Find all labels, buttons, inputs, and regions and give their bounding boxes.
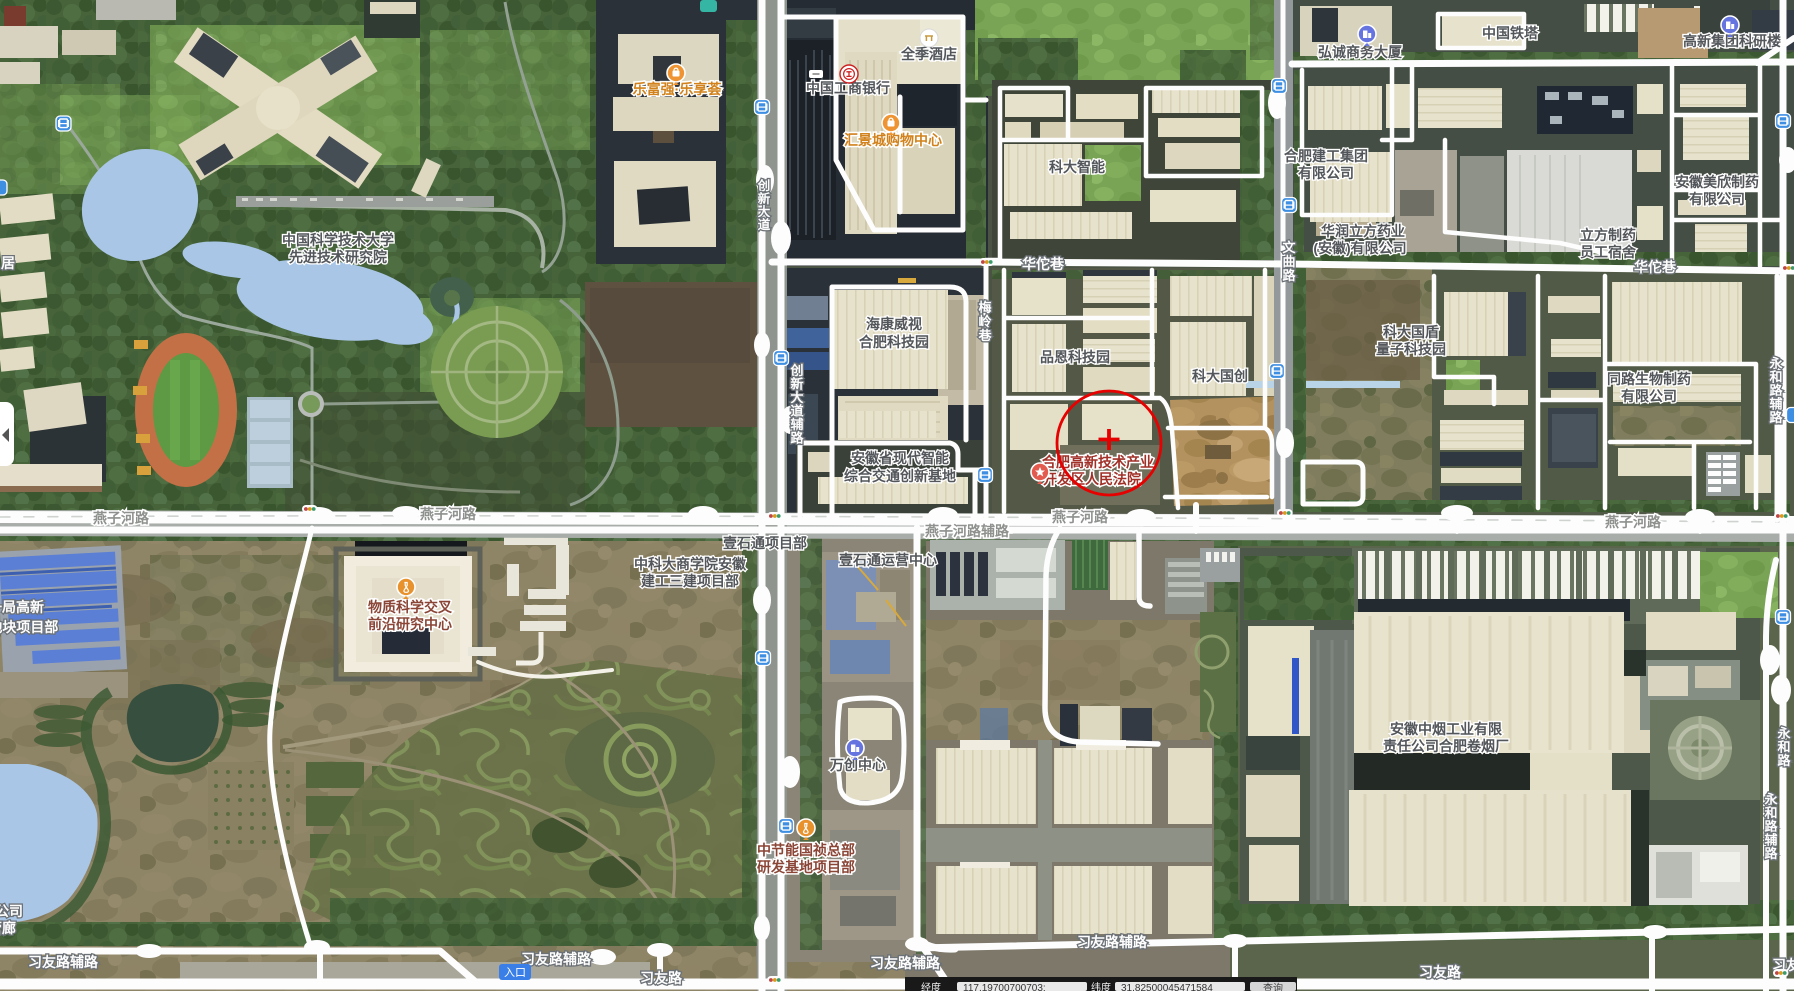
svg-text:高新集团科研楼: 高新集团科研楼 [1683,33,1781,49]
svg-text:全季酒店: 全季酒店 [900,46,957,62]
svg-text:创新大道辅路: 创新大道辅路 [789,363,804,446]
svg-text:202106地块项目部: 202106地块项目部 [0,619,58,635]
svg-text:安徽省现代智能: 安徽省现代智能 [851,450,949,466]
svg-text:安徽中烟工业有限: 安徽中烟工业有限 [1390,721,1502,737]
svg-text:综合交通创新基地: 综合交通创新基地 [844,468,956,484]
svg-text:燕子河路辅路: 燕子河路辅路 [925,523,1010,539]
svg-text:华佗巷: 华佗巷 [1634,259,1677,275]
svg-text:先进技术研究院: 先进技术研究院 [289,249,387,265]
svg-text:合肥科技园: 合肥科技园 [859,334,929,350]
svg-text:中国科学技术大学: 中国科学技术大学 [282,232,394,248]
svg-text:有限公司: 有限公司 [1621,388,1677,404]
svg-text:文曲路: 文曲路 [1282,240,1296,283]
svg-text:燕子河路: 燕子河路 [93,510,150,526]
svg-text:中科大商学院安徽: 中科大商学院安徽 [634,556,747,572]
svg-text:创新大道: 创新大道 [757,178,771,232]
svg-text:同路生物制药: 同路生物制药 [1607,371,1691,387]
svg-text:员工宿舍: 员工宿舍 [1580,244,1637,260]
svg-text:海康威视: 海康威视 [866,316,922,332]
svg-text:习友路辅路: 习友路辅路 [1077,934,1148,950]
svg-text:中国铁塔: 中国铁塔 [1482,25,1539,41]
svg-text:有限公司: 有限公司 [1298,165,1354,181]
svg-text:科大国创: 科大国创 [1192,368,1248,384]
svg-text:量子科技园: 量子科技园 [1376,341,1446,357]
svg-text:万创中心: 万创中心 [829,757,886,773]
svg-text:弘诚商务大厦: 弘诚商务大厦 [1318,44,1403,60]
svg-text:合肥建工集团: 合肥建工集团 [1284,148,1368,164]
svg-text:立方制药: 立方制药 [1580,227,1636,243]
svg-text:习友路辅路: 习友路辅路 [28,954,99,970]
svg-text:乐富强·乐享荟: 乐富强·乐享荟 [633,81,723,97]
svg-text:习友路: 习友路 [640,970,683,986]
svg-text:燕子河路: 燕子河路 [1052,509,1109,525]
svg-text:建工三建项目部: 建工三建项目部 [641,573,739,589]
svg-text:梅岭巷: 梅岭巷 [977,300,992,343]
svg-text:燕子河路: 燕子河路 [420,506,477,522]
svg-text:物质科学交叉: 物质科学交叉 [368,599,453,615]
svg-text:永和路辅路: 永和路辅路 [1763,792,1778,861]
svg-text:责任公司合肥卷烟厂: 责任公司合肥卷烟厂 [1383,738,1509,754]
svg-text:管廊: 管廊 [0,920,16,936]
svg-text:习友路辅路: 习友路辅路 [870,955,941,971]
svg-text:有限公司: 有限公司 [1689,191,1745,207]
svg-text:习友路: 习友路 [1419,964,1462,980]
svg-text:前沿研究中心: 前沿研究中心 [368,616,452,632]
svg-text:壹石通项目部: 壹石通项目部 [723,535,807,551]
svg-text:31.82500045471584: 31.82500045471584 [1121,983,1213,991]
svg-text:品恩科技园: 品恩科技园 [1040,349,1110,365]
svg-text:永和路辅路: 永和路辅路 [1768,356,1783,425]
svg-text:科大国盾: 科大国盾 [1383,324,1439,340]
svg-text:燕子河路: 燕子河路 [1605,514,1662,530]
svg-text:廊公司: 廊公司 [0,903,23,919]
svg-text:华佗巷: 华佗巷 [1022,256,1065,272]
svg-text:经度: 经度 [921,981,941,991]
svg-text:中建一局高新: 中建一局高新 [0,599,44,615]
svg-text:纬度: 纬度 [1091,981,1111,991]
svg-text:壹石通运营中心: 壹石通运营中心 [839,552,937,568]
svg-text:科大智能: 科大智能 [1049,159,1105,175]
svg-text:华润立方药业: 华润立方药业 [1321,223,1405,239]
svg-text:居: 居 [1,255,15,271]
svg-text:习友路辅路: 习友路辅路 [521,951,592,967]
svg-text:117.19700700703;: 117.19700700703; [963,983,1046,991]
svg-text:永和路: 永和路 [1776,726,1791,768]
svg-text:(安徽)有限公司: (安徽)有限公司 [1313,240,1406,256]
svg-text:查询: 查询 [1263,982,1283,991]
svg-text:安徽美欣制药: 安徽美欣制药 [1675,174,1759,190]
svg-text:中节能国祯总部: 中节能国祯总部 [757,842,855,858]
svg-text:入口: 入口 [504,967,526,979]
svg-text:研发基地项目部: 研发基地项目部 [757,859,855,875]
svg-text:开发区人民法院: 开发区人民法院 [1043,471,1141,487]
